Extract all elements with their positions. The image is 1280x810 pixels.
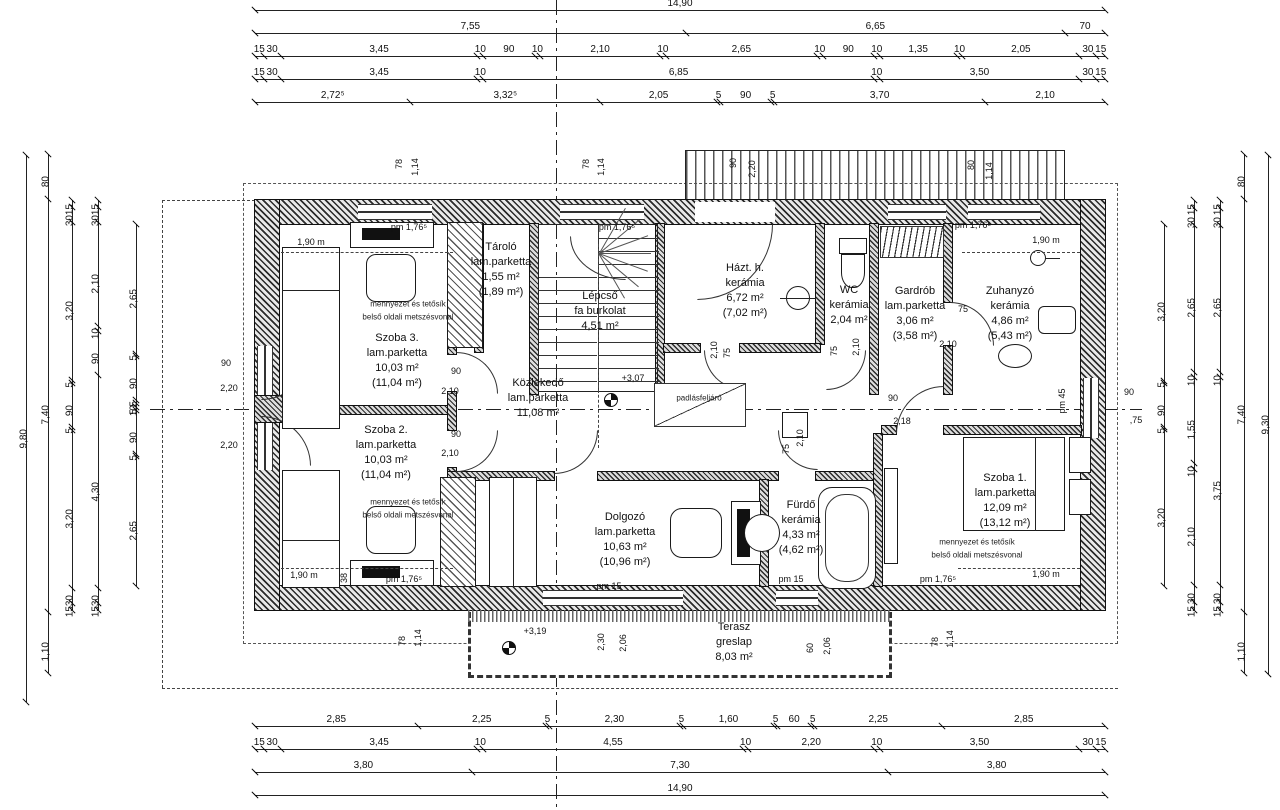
roof-outline-bottom bbox=[162, 688, 1118, 689]
dim-label: 4,55 bbox=[603, 737, 622, 748]
dim-label: 2,25 bbox=[472, 714, 491, 725]
terrace-eaves-band bbox=[468, 610, 892, 622]
dim-label: 2,65 bbox=[129, 521, 140, 540]
plan-label: 2,20 bbox=[747, 160, 757, 178]
toilet bbox=[998, 344, 1032, 368]
plan-label: mennyezet és tetősík bbox=[939, 538, 1015, 547]
room-label-area: 11,08 m² bbox=[508, 406, 569, 421]
dim-label: 2,72⁵ bbox=[321, 90, 345, 101]
dim-label: 10 bbox=[871, 737, 882, 748]
dimension-line bbox=[255, 56, 1105, 57]
room-label-name: Gardrób bbox=[885, 284, 946, 299]
dim-label: 15 bbox=[1187, 204, 1198, 215]
plan-label: 90 bbox=[221, 358, 231, 368]
dim-label: 30 bbox=[91, 595, 102, 606]
room-label-material: lam.parketta bbox=[595, 525, 656, 540]
plan-label: 2,18 bbox=[893, 416, 911, 426]
boiler-line bbox=[780, 298, 816, 299]
dim-label: 9,30 bbox=[1261, 415, 1272, 434]
dim-label: 2,65 bbox=[1187, 298, 1198, 317]
dim-label: 6,85 bbox=[669, 67, 688, 78]
plan-label: 90 bbox=[451, 429, 461, 439]
dim-label: 15 bbox=[91, 606, 102, 617]
bathtub-inner bbox=[825, 494, 869, 582]
dim-label: 15 bbox=[65, 606, 76, 617]
plan-label: pm 1,76⁵ bbox=[955, 220, 991, 230]
plan-label: 1,90 m bbox=[1032, 569, 1060, 579]
dim-label: 2,05 bbox=[649, 90, 668, 101]
dim-label: 90 bbox=[91, 353, 102, 364]
dim-label: 2,65 bbox=[129, 289, 140, 308]
level-marker bbox=[502, 641, 516, 655]
dim-label: 90 bbox=[129, 432, 140, 443]
dim-label: 15 bbox=[65, 204, 76, 215]
dim-label: 30 bbox=[65, 595, 76, 606]
dim-label: 30 bbox=[1213, 217, 1224, 228]
attic-hatch-box bbox=[654, 383, 746, 427]
dim-label: 14,90 bbox=[667, 0, 692, 9]
pm-line bbox=[281, 252, 453, 253]
partition-wall bbox=[816, 472, 878, 480]
room-label: Gardróblam.parketta3,06 m²(3,58 m²) bbox=[885, 284, 946, 344]
room-label-area_total: (3,58 m²) bbox=[885, 329, 946, 344]
room-label-material: lam.parketta bbox=[975, 486, 1036, 501]
plan-label: 2,20 bbox=[220, 440, 238, 450]
window bbox=[1083, 378, 1099, 438]
dim-label: 15 bbox=[1095, 737, 1106, 748]
room-label: Fürdőkerámia4,33 m²(4,62 m²) bbox=[779, 498, 824, 558]
dim-label: 30 bbox=[267, 44, 278, 55]
room-label-material: kerámia bbox=[779, 513, 824, 528]
plan-label: mennyezet és tetősík bbox=[370, 498, 446, 507]
room-label-name: Zuhanyzó bbox=[986, 284, 1034, 299]
room-label-area: 2,04 m² bbox=[829, 313, 868, 328]
room-label-area: 4,33 m² bbox=[779, 528, 824, 543]
washbasin bbox=[744, 514, 780, 552]
room-label-material: lam.parketta bbox=[367, 346, 428, 361]
room-label-area: 4,86 m² bbox=[986, 314, 1034, 329]
dim-label: 3,50 bbox=[970, 737, 989, 748]
chair bbox=[366, 254, 416, 302]
room-label-name: Terasz bbox=[715, 620, 752, 635]
dim-label: 5 bbox=[129, 409, 140, 415]
partition-wall bbox=[740, 344, 820, 352]
dim-label: 80 bbox=[1237, 176, 1248, 187]
dim-label: 1,60 bbox=[719, 714, 738, 725]
dim-label: 10 bbox=[814, 44, 825, 55]
dim-label: 30 bbox=[1187, 217, 1198, 228]
dim-label: 4,30 bbox=[91, 482, 102, 501]
roof-outline-left bbox=[162, 200, 163, 688]
dim-label: 5 bbox=[810, 714, 816, 725]
dim-label: 60 bbox=[789, 714, 800, 725]
dim-label: 10 bbox=[91, 328, 102, 339]
dim-label: 10 bbox=[740, 737, 751, 748]
dim-label: 15 bbox=[254, 737, 265, 748]
entrance-opening bbox=[695, 202, 775, 222]
plan-label: 1,14 bbox=[410, 158, 420, 176]
dimension-line bbox=[255, 795, 1105, 796]
plan-label: 78 bbox=[397, 636, 407, 646]
dim-label: 5 bbox=[129, 355, 140, 361]
plan-label: 2,06 bbox=[618, 634, 628, 652]
dim-label: 2,10 bbox=[1187, 527, 1198, 546]
room-label: WCkerámia2,04 m² bbox=[829, 283, 868, 328]
room-label: Házt. h.kerámia6,72 m²(7,02 m²) bbox=[723, 261, 768, 321]
dim-label: 15 bbox=[1213, 606, 1224, 617]
plan-label: 75 bbox=[958, 304, 968, 314]
pm-line bbox=[958, 568, 1080, 569]
plan-label: 2,10 bbox=[441, 386, 459, 396]
room-label: Tárolólam.parketta1,55 m²(1,89 m²) bbox=[471, 240, 532, 300]
plan-label: 1,14 bbox=[413, 629, 423, 647]
dim-label: 3,75 bbox=[1213, 481, 1224, 500]
dimension-line bbox=[255, 772, 1105, 773]
stair-tread bbox=[539, 355, 597, 356]
plan-label: 1,14 bbox=[945, 630, 955, 648]
dim-label: 3,50 bbox=[970, 67, 989, 78]
dim-label: 15 bbox=[1213, 204, 1224, 215]
plan-label: pm 1,76⁵ bbox=[386, 574, 422, 584]
dim-label: 10 bbox=[871, 67, 882, 78]
dim-label: 15 bbox=[1095, 44, 1106, 55]
dim-label: 5 bbox=[770, 90, 776, 101]
room-label-area: 4,51 m² bbox=[574, 319, 625, 334]
window bbox=[776, 590, 818, 606]
plan-label: 1,90 m bbox=[290, 570, 318, 580]
pm-line bbox=[962, 252, 1080, 253]
stairs-walkline bbox=[598, 244, 599, 448]
dim-label: 5 bbox=[716, 90, 722, 101]
partition-wall bbox=[944, 426, 1081, 434]
dim-label: 5 bbox=[545, 714, 551, 725]
dim-label: 1,10 bbox=[1237, 642, 1248, 661]
dimension-line bbox=[255, 10, 1105, 11]
dim-label: 10 bbox=[475, 67, 486, 78]
room-label-area_total: (10,96 m²) bbox=[595, 555, 656, 570]
room-label-area_total: (11,04 m²) bbox=[367, 376, 428, 391]
partition-wall bbox=[870, 224, 878, 394]
stair-tread bbox=[539, 277, 597, 278]
plan-label: 2,30 bbox=[596, 633, 606, 651]
plan-label: 78 bbox=[394, 159, 404, 169]
dim-label: 5 bbox=[679, 714, 685, 725]
plan-label: 38 bbox=[339, 573, 349, 583]
dim-label: 6,65 bbox=[866, 21, 885, 32]
plan-label: 90 bbox=[888, 393, 898, 403]
room-label: Zuhanyzókerámia4,86 m²(5,43 m²) bbox=[986, 284, 1034, 344]
bookshelf-divider bbox=[513, 477, 514, 587]
dim-label: 10 bbox=[657, 44, 668, 55]
dim-label: 30 bbox=[1082, 67, 1093, 78]
dim-label: 15 bbox=[254, 67, 265, 78]
room-label-material: lam.parketta bbox=[508, 391, 569, 406]
plan-label: 1,14 bbox=[984, 162, 994, 180]
dim-label: 3,20 bbox=[65, 301, 76, 320]
dim-label: 30 bbox=[1082, 737, 1093, 748]
window bbox=[543, 590, 683, 606]
plan-label: 90 bbox=[1124, 387, 1134, 397]
window bbox=[358, 204, 432, 220]
dimension-line bbox=[255, 79, 1105, 80]
dim-label: 10 bbox=[1187, 466, 1198, 477]
dim-label: 15 bbox=[254, 44, 265, 55]
balcony-deck bbox=[685, 150, 1065, 205]
dim-label: 30 bbox=[1213, 593, 1224, 604]
room-label-area: 6,72 m² bbox=[723, 291, 768, 306]
dim-label: 90 bbox=[129, 378, 140, 389]
plan-label: 1,90 m bbox=[1032, 235, 1060, 245]
dim-label: 3,80 bbox=[354, 760, 373, 771]
room-label-area_total: (7,02 m²) bbox=[723, 306, 768, 321]
room-label-area: 10,03 m² bbox=[356, 453, 417, 468]
room-label-area: 10,63 m² bbox=[595, 540, 656, 555]
nightstand bbox=[1069, 479, 1091, 515]
window bbox=[888, 204, 946, 220]
plan-label: +3,19 bbox=[524, 626, 547, 636]
dim-label: 10 bbox=[1213, 375, 1224, 386]
dim-label: 90 bbox=[503, 44, 514, 55]
dim-label: 90 bbox=[843, 44, 854, 55]
room-label-area: 1,55 m² bbox=[471, 270, 532, 285]
dim-label: 30 bbox=[91, 215, 102, 226]
dim-label: 14,90 bbox=[667, 783, 692, 794]
plan-label: 1,14 bbox=[596, 158, 606, 176]
dim-label: 10 bbox=[475, 737, 486, 748]
dim-label: 3,45 bbox=[369, 737, 388, 748]
dimension-line bbox=[98, 200, 99, 610]
nightstand bbox=[1069, 437, 1091, 473]
dim-label: 3,80 bbox=[987, 760, 1006, 771]
room-label: Szoba 3.lam.parketta10,03 m²(11,04 m²) bbox=[367, 331, 428, 391]
dim-label: 30 bbox=[1187, 593, 1198, 604]
dim-label: 1,55 bbox=[1187, 420, 1198, 439]
dim-label: 3,45 bbox=[369, 44, 388, 55]
dim-label: 3,20 bbox=[1157, 302, 1168, 321]
room-label-area: 12,09 m² bbox=[975, 501, 1036, 516]
partition-wall bbox=[944, 346, 952, 394]
room-label-name: Tároló bbox=[471, 240, 532, 255]
plan-label: 75 bbox=[722, 348, 732, 358]
room-label-area_total: (13,12 m²) bbox=[975, 516, 1036, 531]
dim-label: 2,10 bbox=[1035, 90, 1054, 101]
room-label: Teraszgreslap8,03 m² bbox=[715, 620, 752, 665]
plan-label: pm 15 bbox=[596, 581, 621, 591]
plan-label: pm 1,76⁵ bbox=[920, 574, 956, 584]
dim-label: 30 bbox=[1082, 44, 1093, 55]
plan-label: 90 bbox=[728, 158, 738, 168]
dim-label: 30 bbox=[267, 67, 278, 78]
dim-label: 15 bbox=[1095, 67, 1106, 78]
dim-label: 2,85 bbox=[327, 714, 346, 725]
room-label-area_total: (11,04 m²) bbox=[356, 468, 417, 483]
dim-label: 70 bbox=[1079, 21, 1090, 32]
dim-label: 10 bbox=[475, 44, 486, 55]
bed-pillow-line bbox=[282, 540, 340, 541]
partition-wall bbox=[448, 392, 456, 430]
dim-label: 30 bbox=[65, 215, 76, 226]
plan-label: belső oldali metszésvonal bbox=[931, 551, 1022, 560]
room-label-material: kerámia bbox=[723, 276, 768, 291]
room-label-material: kerámia bbox=[986, 299, 1034, 314]
room-label-area_total: (1,89 m²) bbox=[471, 285, 532, 300]
dim-label: 5 bbox=[773, 714, 779, 725]
room-label-name: Dolgozó bbox=[595, 510, 656, 525]
window bbox=[968, 204, 1040, 220]
plan-label: 75 bbox=[829, 346, 839, 356]
plan-label: 2,10 bbox=[795, 429, 805, 447]
plan-label: ,75 bbox=[1130, 415, 1143, 425]
room-label-name: Lépcső bbox=[574, 289, 625, 304]
plan-label: 2,06 bbox=[822, 637, 832, 655]
room-label-name: Fürdő bbox=[779, 498, 824, 513]
dim-label: 9,80 bbox=[19, 429, 30, 448]
dim-label: 1,10 bbox=[41, 642, 52, 661]
room-label-area: 3,06 m² bbox=[885, 314, 946, 329]
dim-label: 30 bbox=[267, 737, 278, 748]
dim-label: 90 bbox=[1157, 405, 1168, 416]
partition-wall bbox=[816, 224, 824, 344]
dimension-line bbox=[1194, 200, 1195, 610]
plan-label: 80 bbox=[966, 160, 976, 170]
plan-label: pm 1,76⁵ bbox=[599, 222, 635, 232]
room-label-material: fa burkolat bbox=[574, 304, 625, 319]
level-marker bbox=[604, 393, 618, 407]
washbasin bbox=[1038, 306, 1076, 334]
room-label-name: Közlekedő bbox=[508, 376, 569, 391]
dim-label: 2,65 bbox=[1213, 298, 1224, 317]
plan-label: 78 bbox=[581, 159, 591, 169]
wardrobe bbox=[440, 477, 476, 587]
pm-line bbox=[281, 568, 453, 569]
partition-wall bbox=[882, 426, 896, 434]
room-label: Közlekedőlam.parketta11,08 m² bbox=[508, 376, 569, 421]
stair-tread bbox=[599, 368, 659, 369]
dim-label: 10 bbox=[1187, 375, 1198, 386]
stair-tread bbox=[599, 355, 659, 356]
dim-label: 7,40 bbox=[41, 405, 52, 424]
chair bbox=[670, 508, 722, 558]
plan-label: mennyezet és tetősík bbox=[370, 300, 446, 309]
room-label: Dolgozólam.parketta10,63 m²(10,96 m²) bbox=[595, 510, 656, 570]
plan-label: 60 bbox=[805, 643, 815, 653]
dim-label: 2,30 bbox=[605, 714, 624, 725]
dim-label: 2,85 bbox=[1014, 714, 1033, 725]
room-label-name: Házt. h. bbox=[723, 261, 768, 276]
plan-label: 2,20 bbox=[220, 383, 238, 393]
dim-label: 2,65 bbox=[732, 44, 751, 55]
room-label: Szoba 1.lam.parketta12,09 m²(13,12 m²) bbox=[975, 471, 1036, 531]
room-label-material: lam.parketta bbox=[885, 299, 946, 314]
dim-label: 2,05 bbox=[1011, 44, 1030, 55]
room-label-area: 10,03 m² bbox=[367, 361, 428, 376]
plan-label: padlásfeljáró bbox=[676, 394, 721, 403]
room-label-area_total: (5,43 m²) bbox=[986, 329, 1034, 344]
dim-label: 3,20 bbox=[1157, 508, 1168, 527]
dim-label: 2,10 bbox=[590, 44, 609, 55]
partition-wall bbox=[598, 472, 778, 480]
room-label-material: lam.parketta bbox=[356, 438, 417, 453]
plan-label: 2,10 bbox=[851, 338, 861, 356]
room-label-area: 8,03 m² bbox=[715, 650, 752, 665]
plan-label: pm 45 bbox=[1057, 388, 1067, 413]
stair-tread bbox=[539, 342, 597, 343]
floor-plan-canvas: 14,907,556,657015303,451090102,10102,651… bbox=[0, 0, 1280, 810]
plan-label: 2,10 bbox=[441, 448, 459, 458]
window bbox=[560, 204, 644, 220]
shower-arm bbox=[1046, 258, 1060, 259]
partition-wall bbox=[664, 344, 700, 352]
dimension-line bbox=[1220, 200, 1221, 610]
stair-tread bbox=[599, 342, 659, 343]
dim-label: 15 bbox=[91, 204, 102, 215]
dim-label: 3,32⁵ bbox=[493, 90, 517, 101]
plan-label: 2,10 bbox=[939, 339, 957, 349]
plan-label: 90 bbox=[451, 366, 461, 376]
room-label-area_total: (4,62 m²) bbox=[779, 543, 824, 558]
plan-label: 1,90 m bbox=[297, 237, 325, 247]
room-label-material: lam.parketta bbox=[471, 255, 532, 270]
dim-label: 2,25 bbox=[869, 714, 888, 725]
plan-label: pm 15 bbox=[778, 574, 803, 584]
room-label-name: Szoba 1. bbox=[975, 471, 1036, 486]
bed-pillow-line bbox=[282, 290, 340, 291]
dim-label: 15 bbox=[1187, 606, 1198, 617]
dim-label: 3,45 bbox=[369, 67, 388, 78]
plan-label: 78 bbox=[930, 637, 940, 647]
dim-label: 10 bbox=[532, 44, 543, 55]
plan-label: +3,07 bbox=[622, 373, 645, 383]
roof-outline-top-left bbox=[162, 200, 255, 201]
dim-label: 5 bbox=[1157, 428, 1168, 434]
plan-label: belső oldali metszésvonal bbox=[362, 511, 453, 520]
plan-label: 75 bbox=[781, 444, 791, 454]
dimension-line bbox=[255, 33, 1105, 34]
room-label-name: WC bbox=[829, 283, 868, 298]
dim-label: 90 bbox=[740, 90, 751, 101]
dim-label: 7,30 bbox=[670, 760, 689, 771]
dim-label: 7,55 bbox=[461, 21, 480, 32]
dim-label: 5 bbox=[1157, 382, 1168, 388]
bed bbox=[282, 247, 340, 429]
dim-label: 3,70 bbox=[870, 90, 889, 101]
dim-label: 7,40 bbox=[1237, 405, 1248, 424]
dim-label: 5 bbox=[65, 428, 76, 434]
room-label-name: Szoba 3. bbox=[367, 331, 428, 346]
dim-label: 80 bbox=[41, 176, 52, 187]
dim-label: 1,35 bbox=[908, 44, 927, 55]
room-label-name: Szoba 2. bbox=[356, 423, 417, 438]
dim-label: 10 bbox=[954, 44, 965, 55]
room-label-material: kerámia bbox=[829, 298, 868, 313]
dim-label: 5 bbox=[65, 382, 76, 388]
dimension-line bbox=[255, 749, 1105, 750]
room-label-material: greslap bbox=[715, 635, 752, 650]
dimension-line bbox=[255, 102, 1105, 103]
plan-label: 2,10 bbox=[709, 341, 719, 359]
gardrob-hanging-rail bbox=[880, 226, 944, 258]
dim-label: 2,20 bbox=[801, 737, 820, 748]
dim-label: 2,10 bbox=[91, 274, 102, 293]
dim-label: 3,20 bbox=[65, 509, 76, 528]
toilet bbox=[839, 238, 867, 254]
radiator bbox=[884, 468, 898, 564]
room-label: Lépcsőfa burkolat4,51 m² bbox=[574, 289, 625, 334]
plan-label: belső oldali metszésvonal bbox=[362, 313, 453, 322]
plan-label: pm 1,76⁵ bbox=[391, 222, 427, 232]
dim-label: 90 bbox=[65, 405, 76, 416]
dim-label: 5 bbox=[129, 455, 140, 461]
